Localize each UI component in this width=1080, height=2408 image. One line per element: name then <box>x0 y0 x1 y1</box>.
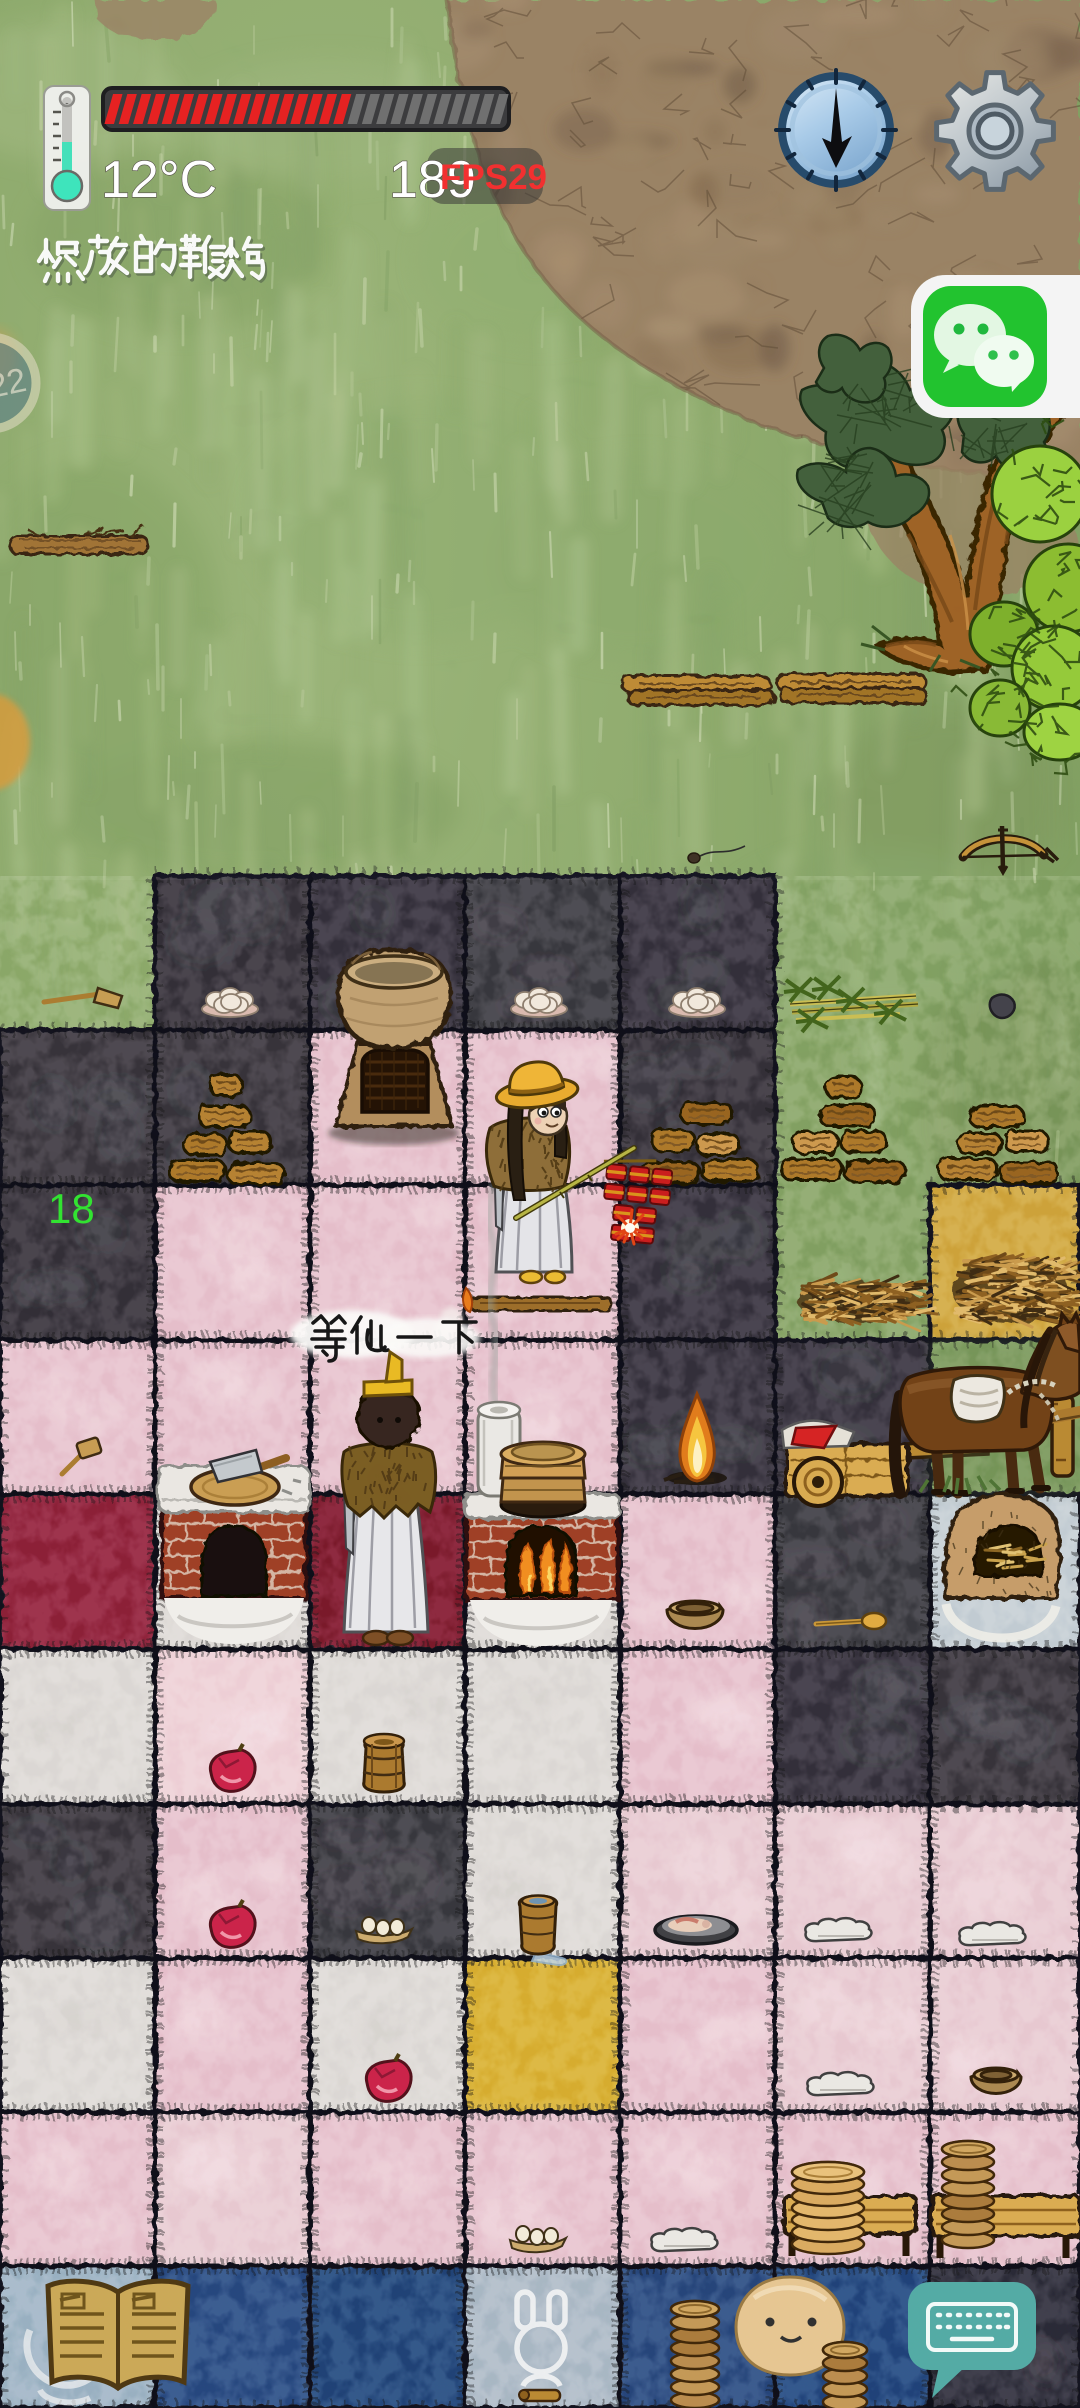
svg-text:FPS29: FPS29 <box>440 158 547 197</box>
svg-text:12°C: 12°C <box>101 151 217 209</box>
